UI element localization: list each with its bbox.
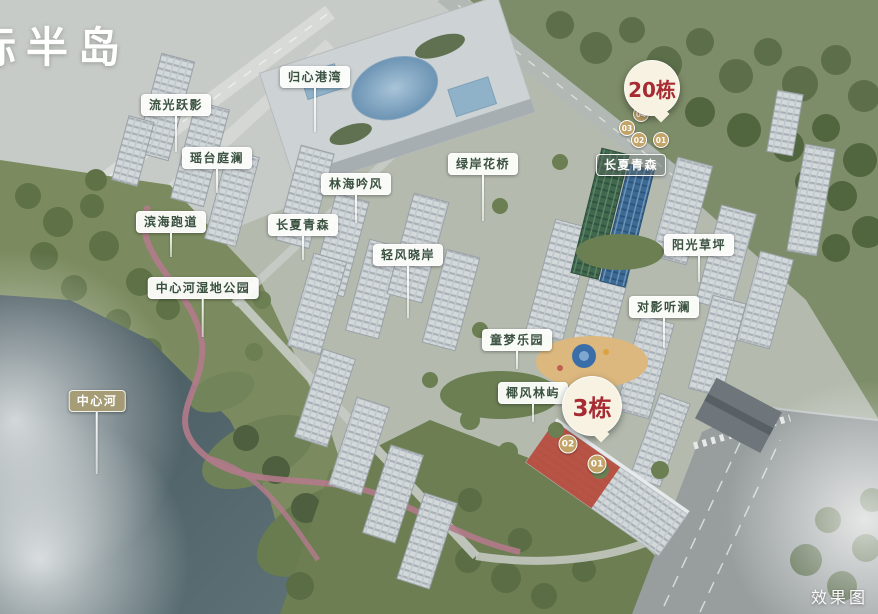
unit-badge-20-01: 01 (653, 132, 669, 148)
unit-badge-3-01: 01 (588, 455, 607, 474)
unit-badge-3-02: 02 (559, 435, 578, 454)
aerial-scene (0, 0, 878, 614)
building-3-badge: 3栋 (562, 376, 622, 436)
project-logo: 际半岛 (0, 14, 130, 75)
building-20-badge: 20栋 (624, 60, 680, 116)
aerial-masterplan-render: 际半岛 归心港湾 流光跃影 瑶台庭澜 林海吟风 绿岸花桥 长夏青森 滨海跑道 中… (0, 0, 878, 614)
unit-badge-20-02: 02 (631, 132, 647, 148)
render-disclaimer: 效果图 (811, 584, 868, 608)
